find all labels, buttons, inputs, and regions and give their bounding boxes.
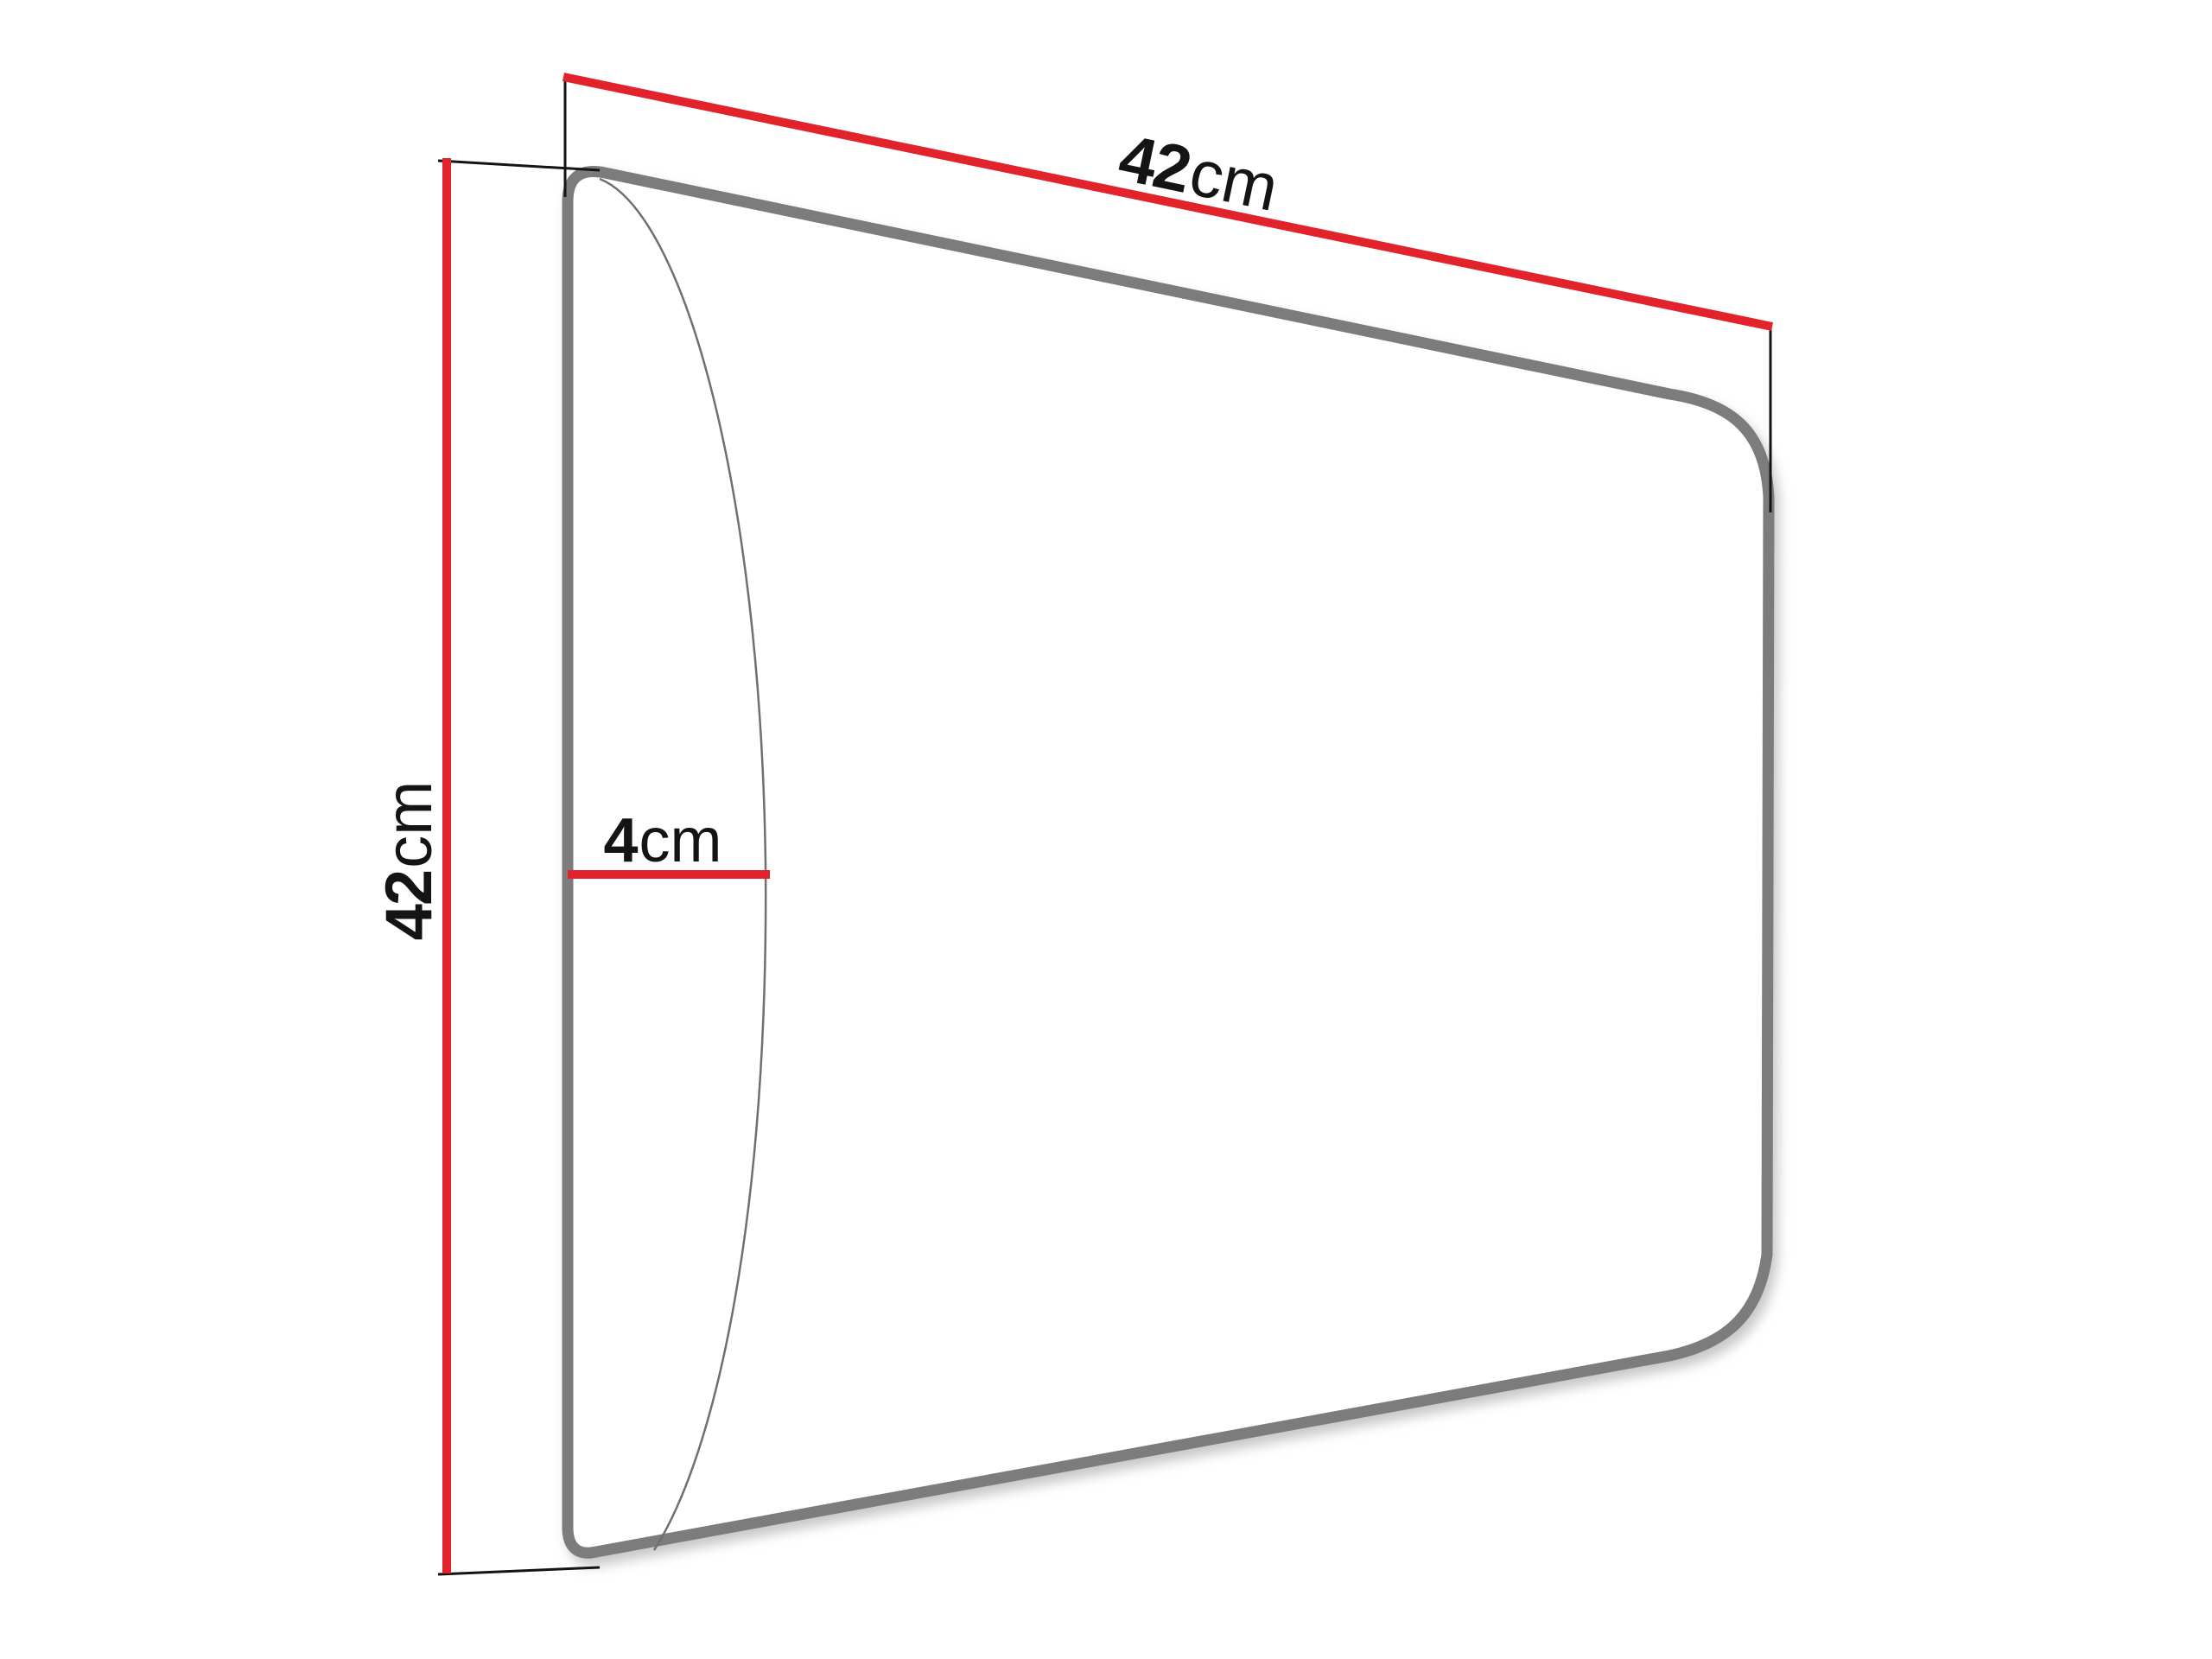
width-value: 42 [1113,121,1196,207]
depth-value: 4 [603,806,636,875]
extension-line-top-left-horizontal [438,161,600,170]
diagram-stage: 42cm 42cm 4cm [0,0,2212,1659]
height-unit: cm [372,781,446,868]
height-value: 42 [372,871,446,941]
extension-line-bottom-left-horizontal [438,1567,600,1574]
depth-dimension-label: 4cm [603,810,721,872]
panel-outline [568,172,1769,1554]
panel-drawing [0,0,2212,1659]
height-dimension-label: 42cm [377,781,442,941]
depth-unit: cm [639,806,722,875]
